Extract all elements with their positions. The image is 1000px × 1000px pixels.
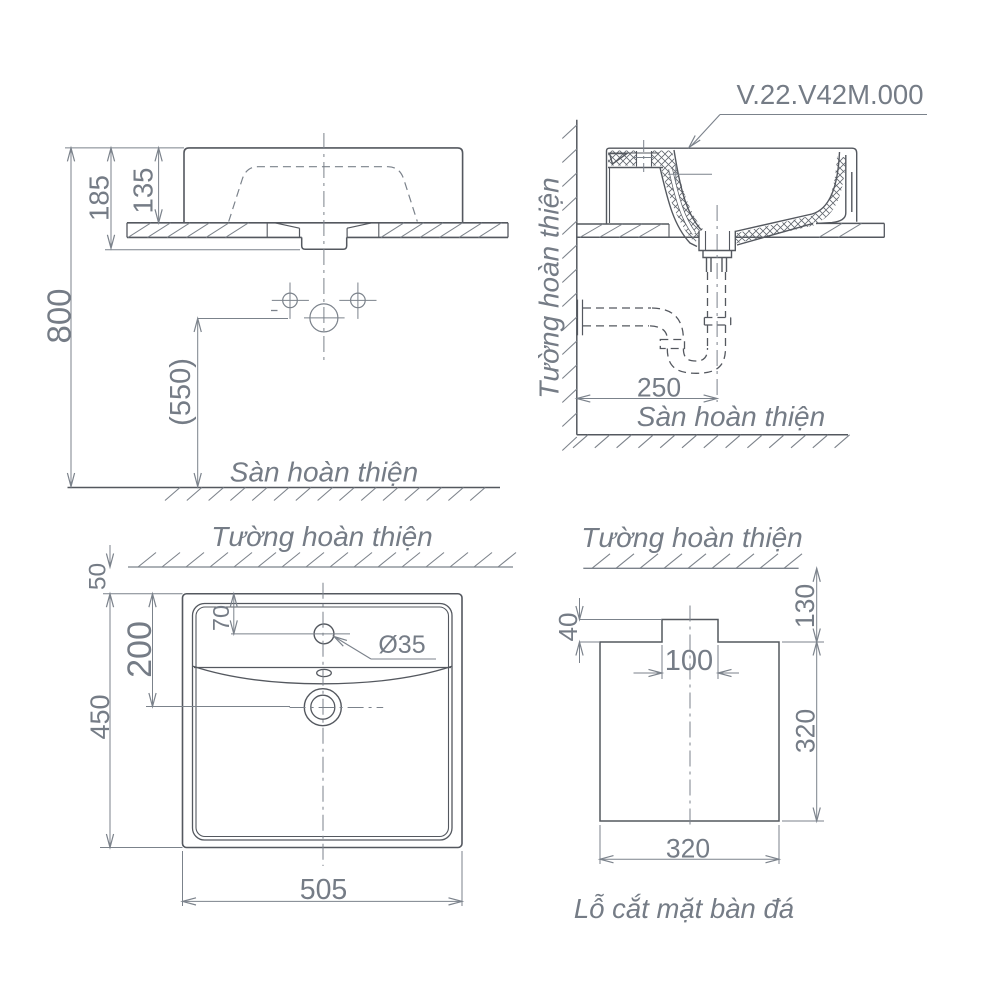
svg-text:800: 800	[41, 288, 78, 343]
svg-text:V.22.V42M.000: V.22.V42M.000	[736, 79, 923, 110]
svg-text:200: 200	[121, 621, 159, 678]
svg-text:320: 320	[666, 834, 710, 864]
svg-text:Tường hoàn thiện: Tường hoàn thiện	[211, 521, 432, 552]
svg-text:Ø35: Ø35	[378, 631, 425, 659]
svg-text:320: 320	[791, 709, 821, 753]
svg-text:505: 505	[300, 874, 348, 906]
svg-text:185: 185	[84, 175, 115, 221]
svg-text:135: 135	[128, 168, 159, 214]
svg-text:250: 250	[637, 373, 681, 403]
svg-text:130: 130	[790, 584, 820, 628]
svg-text:Sàn hoàn thiện: Sàn hoàn thiện	[637, 401, 825, 432]
svg-text:40: 40	[553, 613, 583, 642]
svg-text:(550): (550)	[165, 358, 197, 426]
svg-text:70: 70	[208, 605, 234, 631]
svg-text:Tường hoàn thiện: Tường hoàn thiện	[581, 522, 802, 553]
svg-text:100: 100	[665, 645, 713, 677]
svg-text:Tường hoàn thiện: Tường hoàn thiện	[534, 177, 565, 398]
svg-text:450: 450	[85, 694, 115, 739]
svg-text:Lỗ cắt mặt bàn đá: Lỗ cắt mặt bàn đá	[574, 893, 794, 924]
svg-text:50: 50	[85, 563, 112, 590]
svg-text:Sàn hoàn thiện: Sàn hoàn thiện	[230, 457, 418, 488]
